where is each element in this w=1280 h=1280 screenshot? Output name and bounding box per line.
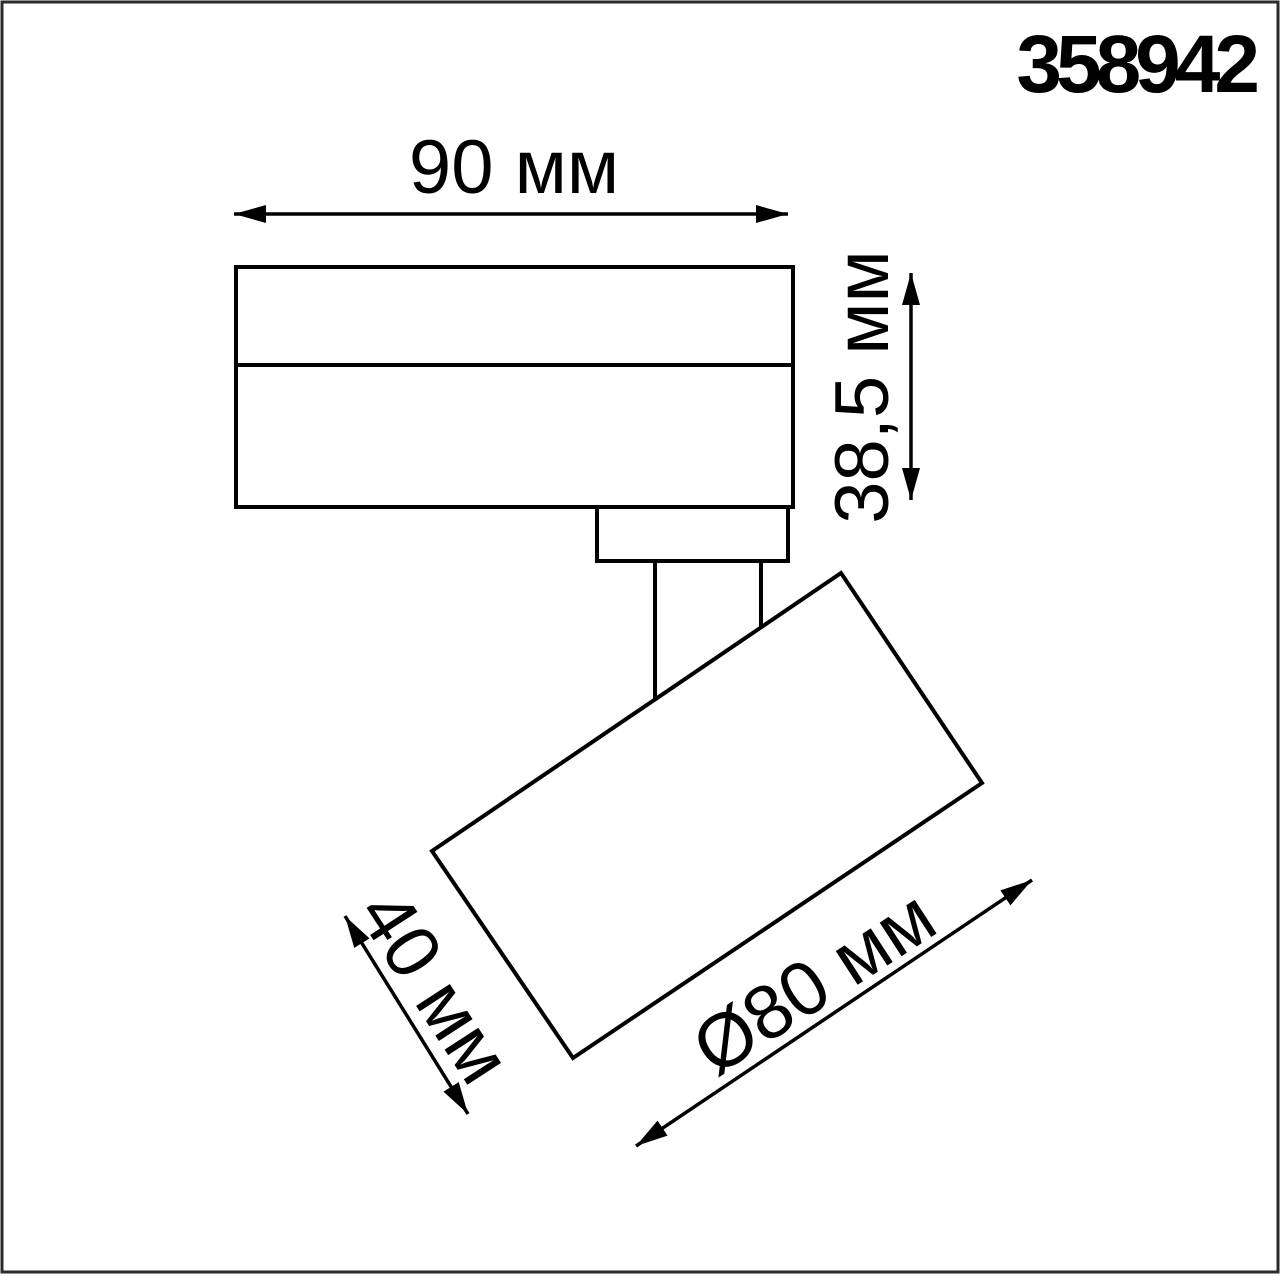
drawing-page: 358942 90 мм 38,5 мм 40 мм Ø80 мм	[0, 0, 1280, 1280]
technical-drawing: 358942 90 мм 38,5 мм 40 мм Ø80 мм	[0, 0, 1280, 1280]
track-body-rect	[236, 267, 793, 507]
product-code: 358942	[1016, 19, 1257, 110]
adapter-rect	[597, 507, 788, 561]
labels: 358942 90 мм 38,5 мм 40 мм Ø80 мм	[342, 19, 1258, 1098]
dim-body-width-label: 90 мм	[409, 125, 619, 210]
dim-body-height-label: 38,5 мм	[820, 250, 905, 524]
image-border	[2, 2, 1278, 1272]
spot-head-polygon	[432, 573, 982, 1058]
